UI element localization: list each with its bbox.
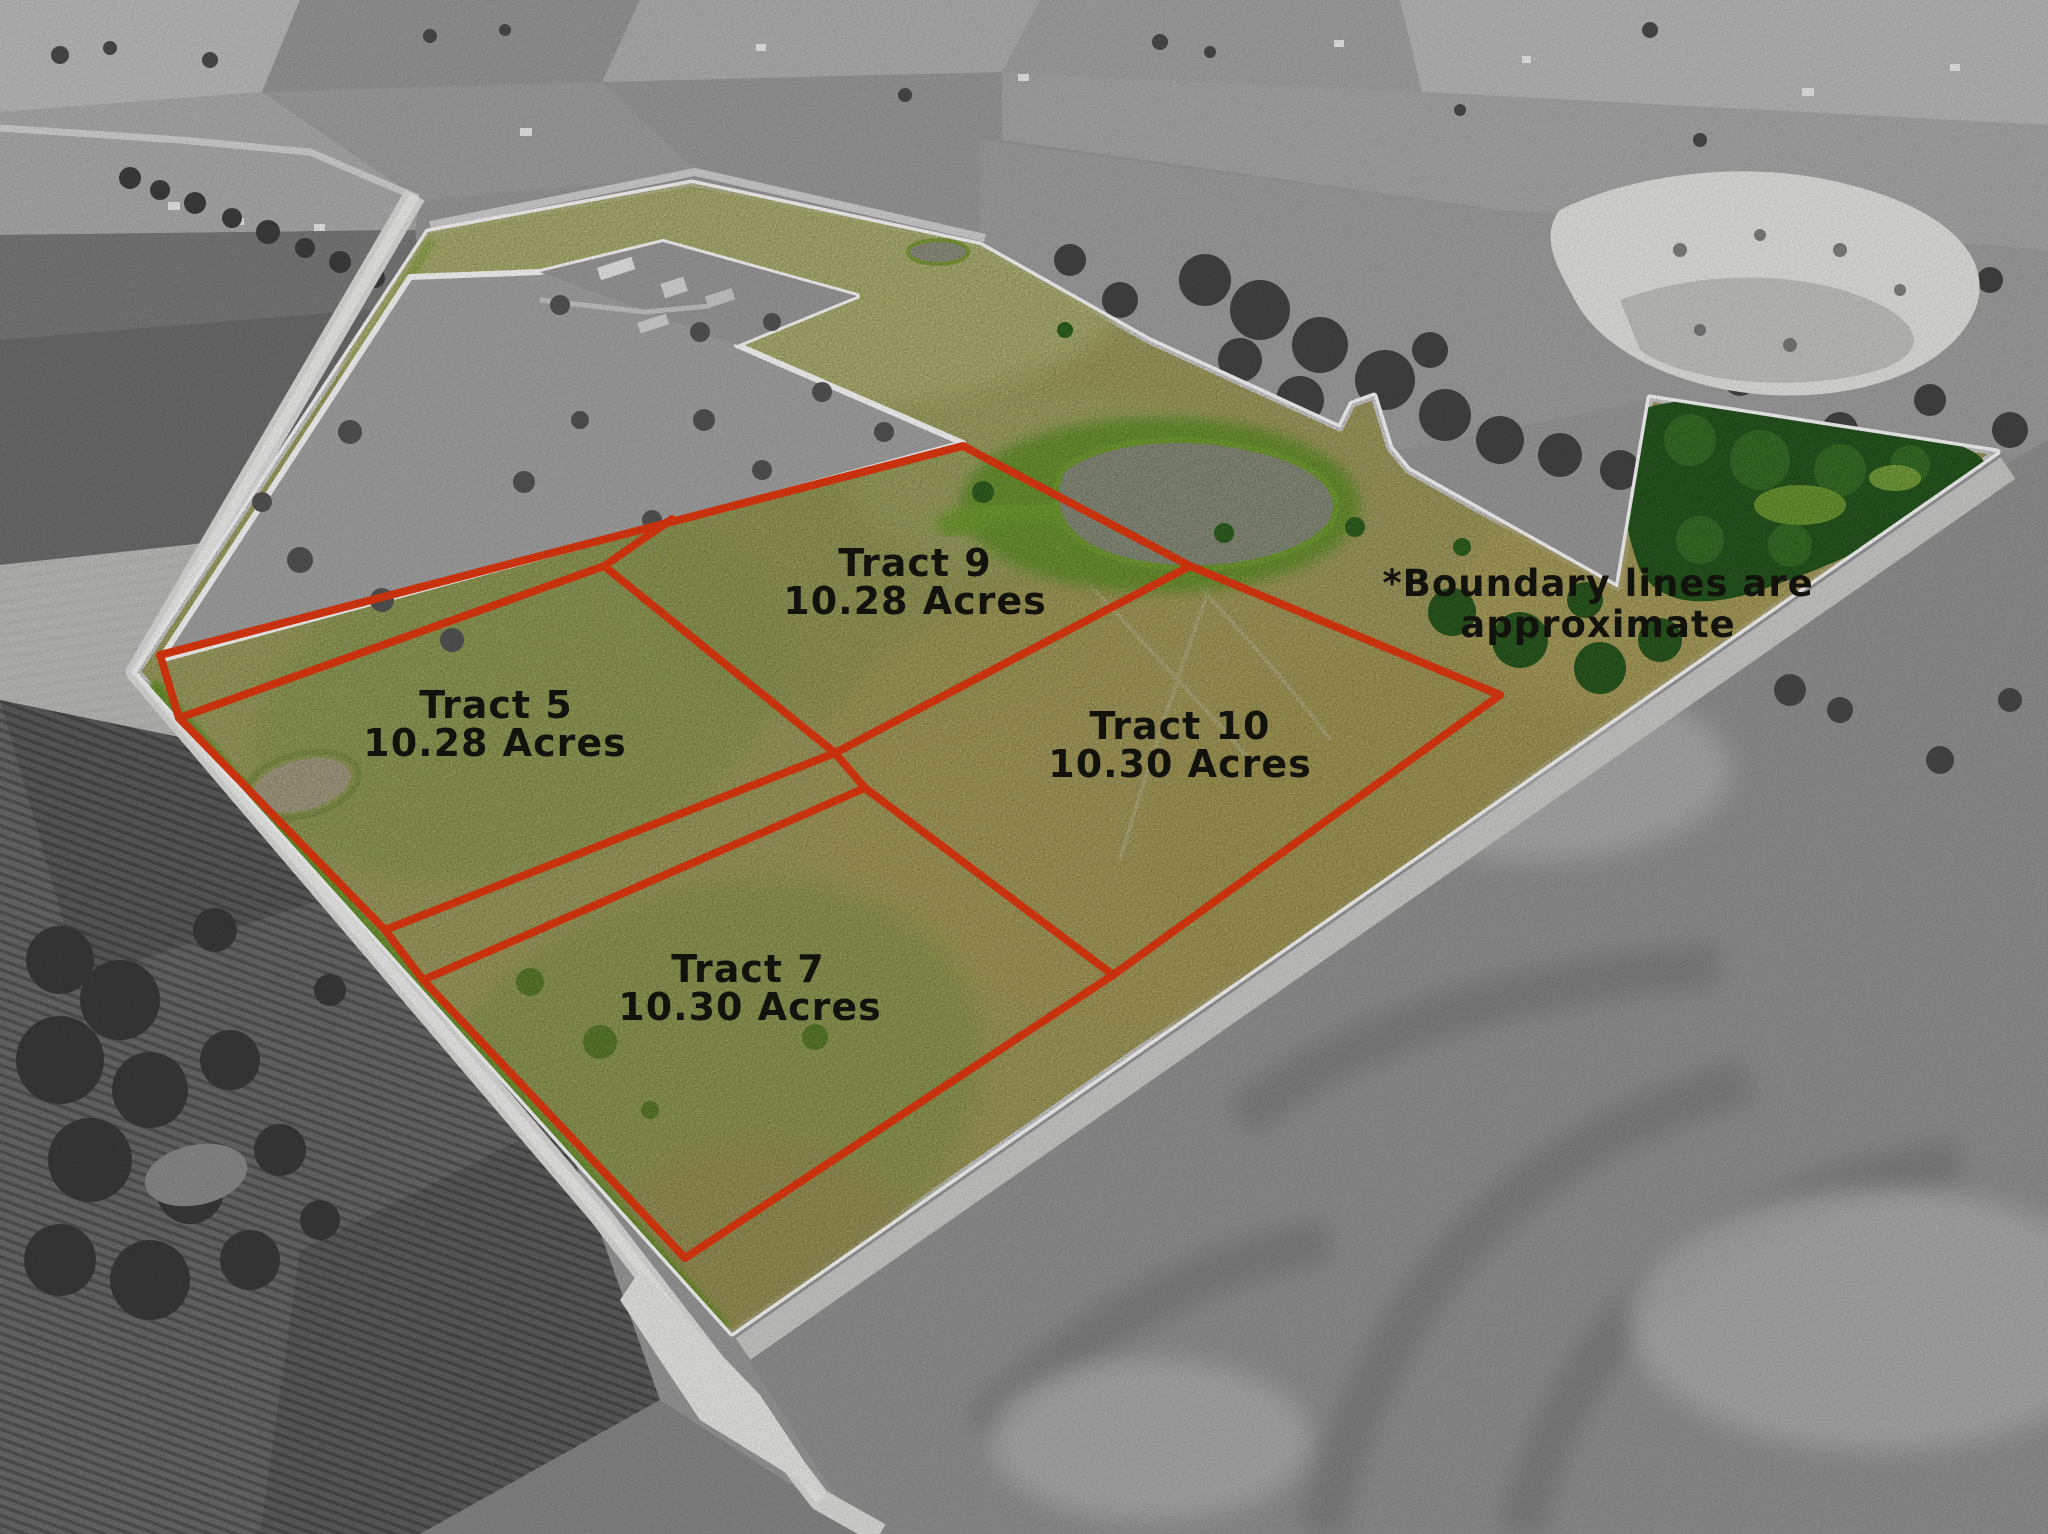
aerial-map: Tract 5 10.28 Acres Tract 7 10.30 Acres … [0, 0, 2048, 1534]
aerial-map-stage: Tract 5 10.28 Acres Tract 7 10.30 Acres … [0, 0, 2048, 1534]
photo-grain-overlay [0, 0, 2048, 1534]
